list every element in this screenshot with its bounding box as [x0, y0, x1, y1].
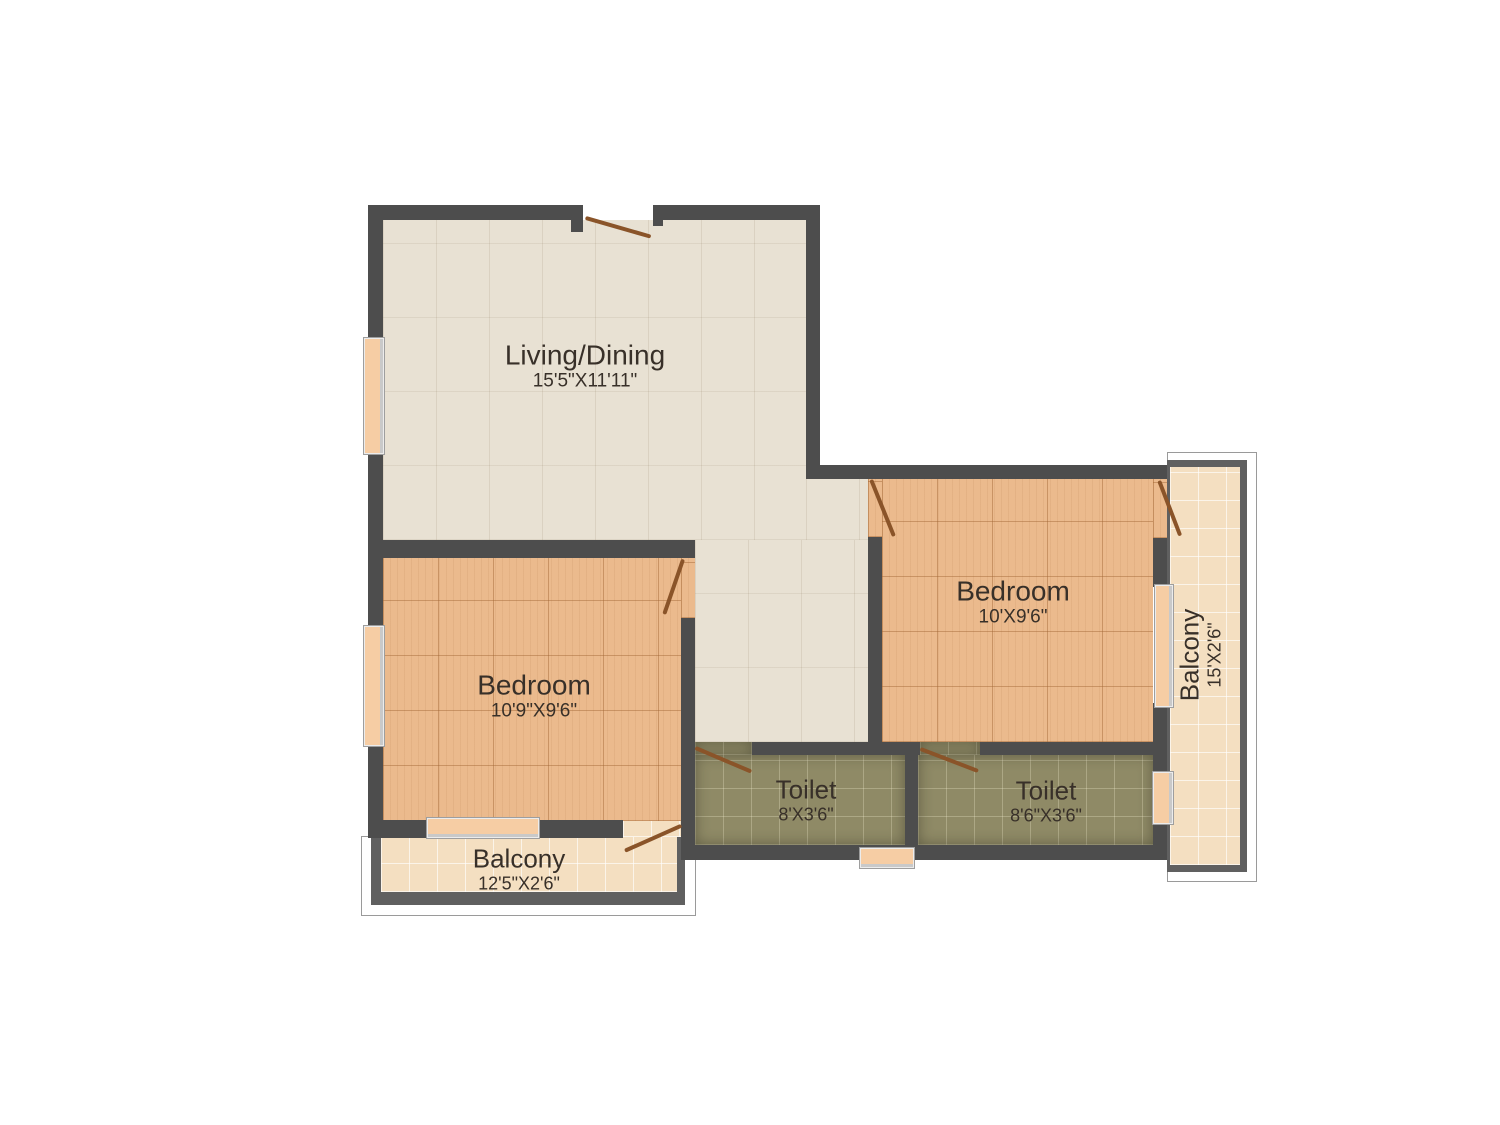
corridor-floor-upper	[806, 479, 868, 540]
wall-entrance-jamb-left	[571, 205, 583, 232]
wall-living-top-right	[655, 205, 820, 220]
living-window	[364, 338, 384, 454]
balcony-right-label: Balcony 15'X2'6"	[1175, 609, 1224, 702]
living-dining-label: Living/Dining 15'5"X11'11"	[505, 340, 665, 393]
toilet-left-name: Toilet	[776, 775, 837, 804]
toilet-right-name: Toilet	[1010, 776, 1082, 805]
bedroom-right-balcony-window	[1155, 585, 1173, 707]
wall-bedroom-left-right	[681, 618, 695, 848]
wall-living-top-left	[368, 205, 580, 220]
bedroom-right-name: Bedroom	[956, 576, 1070, 607]
wall-bedroom-left-top	[368, 540, 695, 558]
bedroom-right-label: Bedroom 10'X9'6"	[956, 576, 1070, 629]
bedroom-left-name: Bedroom	[477, 670, 591, 701]
bedroom-left-window	[364, 626, 384, 746]
bedroom-right-dims: 10'X9'6"	[956, 607, 1070, 628]
wall-toilet-top-right	[980, 742, 1155, 755]
wall-bedroom-right-top	[806, 465, 1167, 479]
toilet-right-dims: 8'6"X3'6"	[1010, 805, 1082, 825]
toilet-left-dims: 8'X3'6"	[776, 804, 837, 824]
toilet-left-label: Toilet 8'X3'6"	[776, 775, 837, 824]
wall-bedroom-right-right-upper	[1153, 538, 1167, 587]
wall-living-right	[806, 205, 820, 479]
floor-plan: Living/Dining 15'5"X11'11" Bedroom 10'9"…	[0, 0, 1500, 1125]
living-dining-dims: 15'5"X11'11"	[505, 371, 665, 392]
balcony-bottom-name: Balcony	[473, 844, 566, 873]
bedroom-left-dims: 10'9"X9'6"	[477, 701, 591, 722]
wall-bedroom-right-left	[868, 537, 882, 755]
bedroom-left-door-gap	[681, 558, 695, 618]
bottom-wall-vent-window	[860, 848, 914, 868]
balcony-right-name: Balcony	[1175, 609, 1204, 702]
wall-toilet-top-left	[752, 742, 920, 755]
toilet-right-window	[1153, 772, 1173, 824]
balcony-right-dims: 15'X2'6"	[1204, 609, 1224, 702]
wall-toilet-divider	[905, 742, 918, 858]
corridor-floor	[695, 540, 868, 742]
toilet-right-label: Toilet 8'6"X3'6"	[1010, 776, 1082, 825]
bedroom-left-label: Bedroom 10'9"X9'6"	[477, 670, 591, 723]
living-dining-name: Living/Dining	[505, 340, 665, 371]
wall-bottom	[681, 845, 1167, 860]
bedroom-left-balcony-window	[427, 818, 539, 838]
balcony-bottom-label: Balcony 12'5"X2'6"	[473, 844, 566, 893]
wall-entrance-jamb-right	[653, 205, 663, 226]
balcony-bottom-dims: 12'5"X2'6"	[473, 873, 566, 893]
